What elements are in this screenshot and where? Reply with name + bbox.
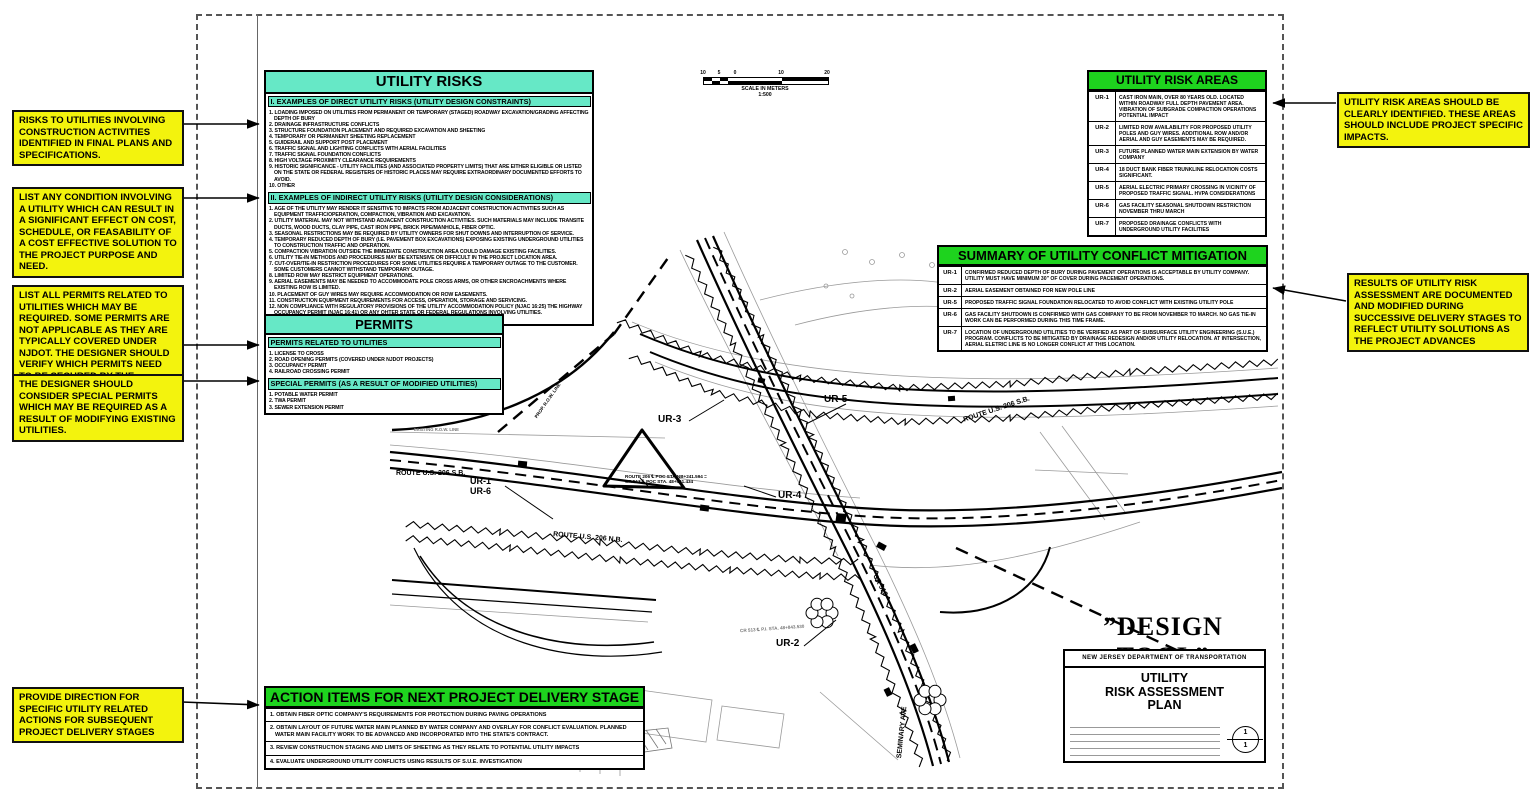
- title-block-rule: [1070, 755, 1220, 756]
- scale-bar-graphic: [703, 77, 829, 85]
- permit-item: 4. RAILROAD CROSSING PERMIT: [269, 369, 499, 375]
- mitigation-code: UR-6: [939, 309, 962, 326]
- plan-title-line: UTILITY: [1065, 672, 1264, 686]
- indirect-risk-item: 2. UTILITY MATERIAL MAY NOT WITHSTAND AD…: [269, 218, 589, 230]
- risk-areas-rows: UR-1 CAST IRON MAIN, OVER 80 YEARS OLD. …: [1089, 91, 1265, 235]
- permits-related-header: PERMITS RELATED TO UTILITIES: [268, 337, 501, 349]
- scale-tick: 10: [700, 70, 706, 76]
- map-label-ur2: UR-2: [776, 638, 799, 649]
- tree-clouds: [806, 598, 946, 714]
- plan-title-line: RISK ASSESSMENT: [1065, 686, 1264, 700]
- risk-area-row: UR-4 18 DUCT BANK FIBER TRUNKLINE RELOCA…: [1089, 163, 1265, 181]
- label-leader-lines: [505, 400, 846, 646]
- risk-areas-title: UTILITY RISK AREAS: [1089, 72, 1265, 91]
- map-label-ur3: UR-3: [658, 414, 681, 425]
- indirect-risk-item: 1. AGE OF THE UTILITY MAY RENDER IT SENS…: [269, 206, 589, 218]
- callout-risks-identified: RISKS TO UTILITIES INVOLVING CONSTRUCTIO…: [12, 110, 184, 166]
- action-items-panel: ACTION ITEMS FOR NEXT PROJECT DELIVERY S…: [264, 686, 645, 770]
- direct-risks-list: 1. LOADING IMPOSED ON UTILITIES FROM PER…: [266, 109, 592, 191]
- sheet-number: 1: [1233, 727, 1258, 740]
- mitigation-code: UR-2: [939, 285, 962, 296]
- mitigation-text: GAS FACILITY SHUTDOWN IS CONFIRMED WITH …: [962, 309, 1266, 326]
- indirect-risk-item: 9. AERIAL EASEMENTS MAY BE NEEDED TO ACC…: [269, 279, 589, 291]
- action-item: 1. OBTAIN FIBER OPTIC COMPANY'S REQUIREM…: [266, 708, 643, 721]
- indirect-risk-item: 3. SEASONAL RESTRICTIONS MAY BE REQUIRED…: [269, 231, 589, 237]
- risk-area-row: UR-3 FUTURE PLANNED WATER MAIN EXTENSION…: [1089, 145, 1265, 163]
- mitigation-row: UR-7 LOCATION OF UNDERGROUND UTILITIES T…: [939, 326, 1266, 350]
- direct-risk-item: 10. OTHER: [269, 183, 589, 189]
- action-items-rows: 1. OBTAIN FIBER OPTIC COMPANY'S REQUIREM…: [266, 708, 643, 768]
- callout-special-permits: THE DESIGNER SHOULD CONSIDER SPECIAL PER…: [12, 374, 184, 442]
- scale-tick: 0: [734, 70, 737, 76]
- mitigation-code: UR-1: [939, 267, 962, 284]
- callout-provide-direction: PROVIDE DIRECTION FOR SPECIFIC UTILITY R…: [12, 687, 184, 743]
- permits-title: PERMITS: [266, 316, 502, 335]
- sheet-number-circle: 1 1: [1232, 726, 1259, 753]
- risk-area-row: UR-2 LIMITED ROW AVAILABILITY FOR PROPOS…: [1089, 121, 1265, 145]
- risk-area-text: FUTURE PLANNED WATER MAIN EXTENSION BY W…: [1116, 146, 1265, 163]
- risk-area-code: UR-2: [1089, 122, 1116, 145]
- mitigation-code: UR-5: [939, 297, 962, 308]
- risk-area-text: GAS FACILITY SEASONAL SHUTDOWN RESTRICTI…: [1116, 200, 1265, 217]
- scale-ratio: 1:500: [703, 92, 827, 98]
- indirect-risk-item: 7. CUT-OVER/TIE-IN RESTRICTION PROCEDURE…: [269, 261, 589, 273]
- risk-area-text: 18 DUCT BANK FIBER TRUNKLINE RELOCATION …: [1116, 164, 1265, 181]
- risk-area-row: UR-6 GAS FACILITY SEASONAL SHUTDOWN REST…: [1089, 199, 1265, 217]
- mitigation-row: UR-5 PROPOSED TRAFFIC SIGNAL FOUNDATION …: [939, 296, 1266, 308]
- mitigation-row: UR-2 AERIAL EASEMENT OBTAINED FOR NEW PO…: [939, 284, 1266, 296]
- risk-area-row: UR-1 CAST IRON MAIN, OVER 80 YEARS OLD. …: [1089, 91, 1265, 121]
- direct-risks-header: I. EXAMPLES OF DIRECT UTILITY RISKS (UTI…: [268, 96, 591, 108]
- title-block-rule: [1070, 741, 1220, 742]
- mitigation-code: UR-7: [939, 327, 962, 350]
- station-equation-line2: CR 513 ℄ POC STA. 48+501.434: [625, 479, 707, 484]
- plan-title-line: PLAN: [1065, 699, 1264, 713]
- title-block-rule: [1070, 727, 1220, 728]
- plan-title: UTILITYRISK ASSESSMENTPLAN: [1065, 668, 1264, 713]
- title-block-rule: [1070, 734, 1220, 735]
- title-block-rule: [1070, 748, 1220, 749]
- agency-name: NEW JERSEY DEPARTMENT OF TRANSPORTATION: [1065, 651, 1264, 668]
- direct-risk-item: 1. LOADING IMPOSED ON UTILITIES FROM PER…: [269, 110, 589, 122]
- map-label-ur4: UR-4: [778, 490, 801, 501]
- mitigation-text: AERIAL EASEMENT OBTAINED FOR NEW POLE LI…: [962, 285, 1266, 296]
- indirect-risks-header: II. EXAMPLES OF INDIRECT UTILITY RISKS (…: [268, 192, 591, 204]
- risk-area-text: PROPOSED DRAINAGE CONFLICTS WITH UNDERGR…: [1116, 218, 1265, 235]
- map-label-existing-row: EXISTING R.O.W. LINE: [414, 427, 459, 432]
- mitigation-text: PROPOSED TRAFFIC SIGNAL FOUNDATION RELOC…: [962, 297, 1266, 308]
- map-label-ur5: UR-5: [824, 394, 847, 405]
- map-label-station-equation: ROUTE 206 ℄ POC STA.NB+241.594 = CR 513 …: [625, 474, 707, 485]
- sheet-total: 1: [1233, 740, 1258, 752]
- map-label-route206-sb-left: ROUTE U.S. 206 S.B.: [396, 470, 465, 477]
- mitigation-rows: UR-1 CONFIRMED REDUCED DEPTH OF BURY DUR…: [939, 266, 1266, 350]
- action-item: 4. EVALUATE UNDERGROUND UTILITY CONFLICT…: [266, 755, 643, 768]
- special-permit-item: 3. SEWER EXTENSION PERMIT: [269, 405, 499, 411]
- risk-area-code: UR-7: [1089, 218, 1116, 235]
- risk-area-text: LIMITED ROW AVAILABILITY FOR PROPOSED UT…: [1116, 122, 1265, 145]
- title-block: NEW JERSEY DEPARTMENT OF TRANSPORTATION …: [1063, 649, 1266, 763]
- mitigation-text: CONFIRMED REDUCED DEPTH OF BURY DURING P…: [962, 267, 1266, 284]
- action-items-title: ACTION ITEMS FOR NEXT PROJECT DELIVERY S…: [266, 688, 643, 708]
- direct-risk-item: 9. HISTORIC SIGNIFICANCE - UTILITY FACIL…: [269, 164, 589, 182]
- callout-risk-areas-identified: UTILITY RISK AREAS SHOULD BE CLEARLY IDE…: [1337, 92, 1530, 148]
- action-item: 2. OBTAIN LAYOUT OF FUTURE WATER MAIN PL…: [266, 721, 643, 741]
- risk-area-text: CAST IRON MAIN, OVER 80 YEARS OLD. LOCAT…: [1116, 92, 1265, 121]
- indirect-risks-list: 1. AGE OF THE UTILITY MAY RENDER IT SENS…: [266, 205, 592, 324]
- mitigation-row: UR-1 CONFIRMED REDUCED DEPTH OF BURY DUR…: [939, 266, 1266, 284]
- callout-list-condition: LIST ANY CONDITION INVOLVING A UTILITY W…: [12, 187, 184, 278]
- mitigation-text: LOCATION OF UNDERGROUND UTILITIES TO BE …: [962, 327, 1266, 350]
- risk-area-code: UR-1: [1089, 92, 1116, 121]
- map-label-ur6: UR-6: [470, 486, 491, 496]
- callout-assessment-results: RESULTS OF UTILITY RISK ASSESSMENT ARE D…: [1347, 273, 1529, 352]
- risk-area-code: UR-6: [1089, 200, 1116, 217]
- map-label-ur1: UR-1: [470, 476, 491, 486]
- risk-area-row: UR-7 PROPOSED DRAINAGE CONFLICTS WITH UN…: [1089, 217, 1265, 235]
- risk-area-code: UR-4: [1089, 164, 1116, 181]
- scale-tick: 10: [778, 70, 784, 76]
- utility-risks-title: UTILITY RISKS: [266, 72, 592, 94]
- plan-drawing: [0, 0, 1536, 811]
- scale-tick: 20: [824, 70, 830, 76]
- special-permits-header: SPECIAL PERMITS (AS A RESULT OF MODIFIED…: [268, 378, 501, 390]
- mitigation-title: SUMMARY OF UTILITY CONFLICT MITIGATION: [939, 247, 1266, 266]
- mitigation-row: UR-6 GAS FACILITY SHUTDOWN IS CONFIRMED …: [939, 308, 1266, 326]
- permits-related-list: 1. LICENSE TO CROSS2. ROAD OPENING PERMI…: [266, 350, 502, 377]
- action-item: 3. REVIEW CONSTRUCTION STAGING AND LIMIT…: [266, 741, 643, 754]
- indirect-risk-item: 4. TEMPORARY REDUCED DEPTH OF BURY (I.E.…: [269, 237, 589, 249]
- conflict-mitigation-panel: SUMMARY OF UTILITY CONFLICT MITIGATION U…: [937, 245, 1268, 352]
- risk-area-code: UR-5: [1089, 182, 1116, 199]
- risk-area-row: UR-5 AERIAL ELECTRIC PRIMARY CROSSING IN…: [1089, 181, 1265, 199]
- permits-panel: PERMITS PERMITS RELATED TO UTILITIES 1. …: [264, 314, 504, 415]
- special-permits-list: 1. POTABLE WATER PERMIT2. TWA PERMIT3. S…: [266, 391, 502, 412]
- utility-risks-panel: UTILITY RISKS I. EXAMPLES OF DIRECT UTIL…: [264, 70, 594, 326]
- risk-area-code: UR-3: [1089, 146, 1116, 163]
- risk-area-text: AERIAL ELECTRIC PRIMARY CROSSING IN VICI…: [1116, 182, 1265, 199]
- utility-risk-areas-panel: UTILITY RISK AREAS UR-1 CAST IRON MAIN, …: [1087, 70, 1267, 237]
- scale-tick: 5: [718, 70, 721, 76]
